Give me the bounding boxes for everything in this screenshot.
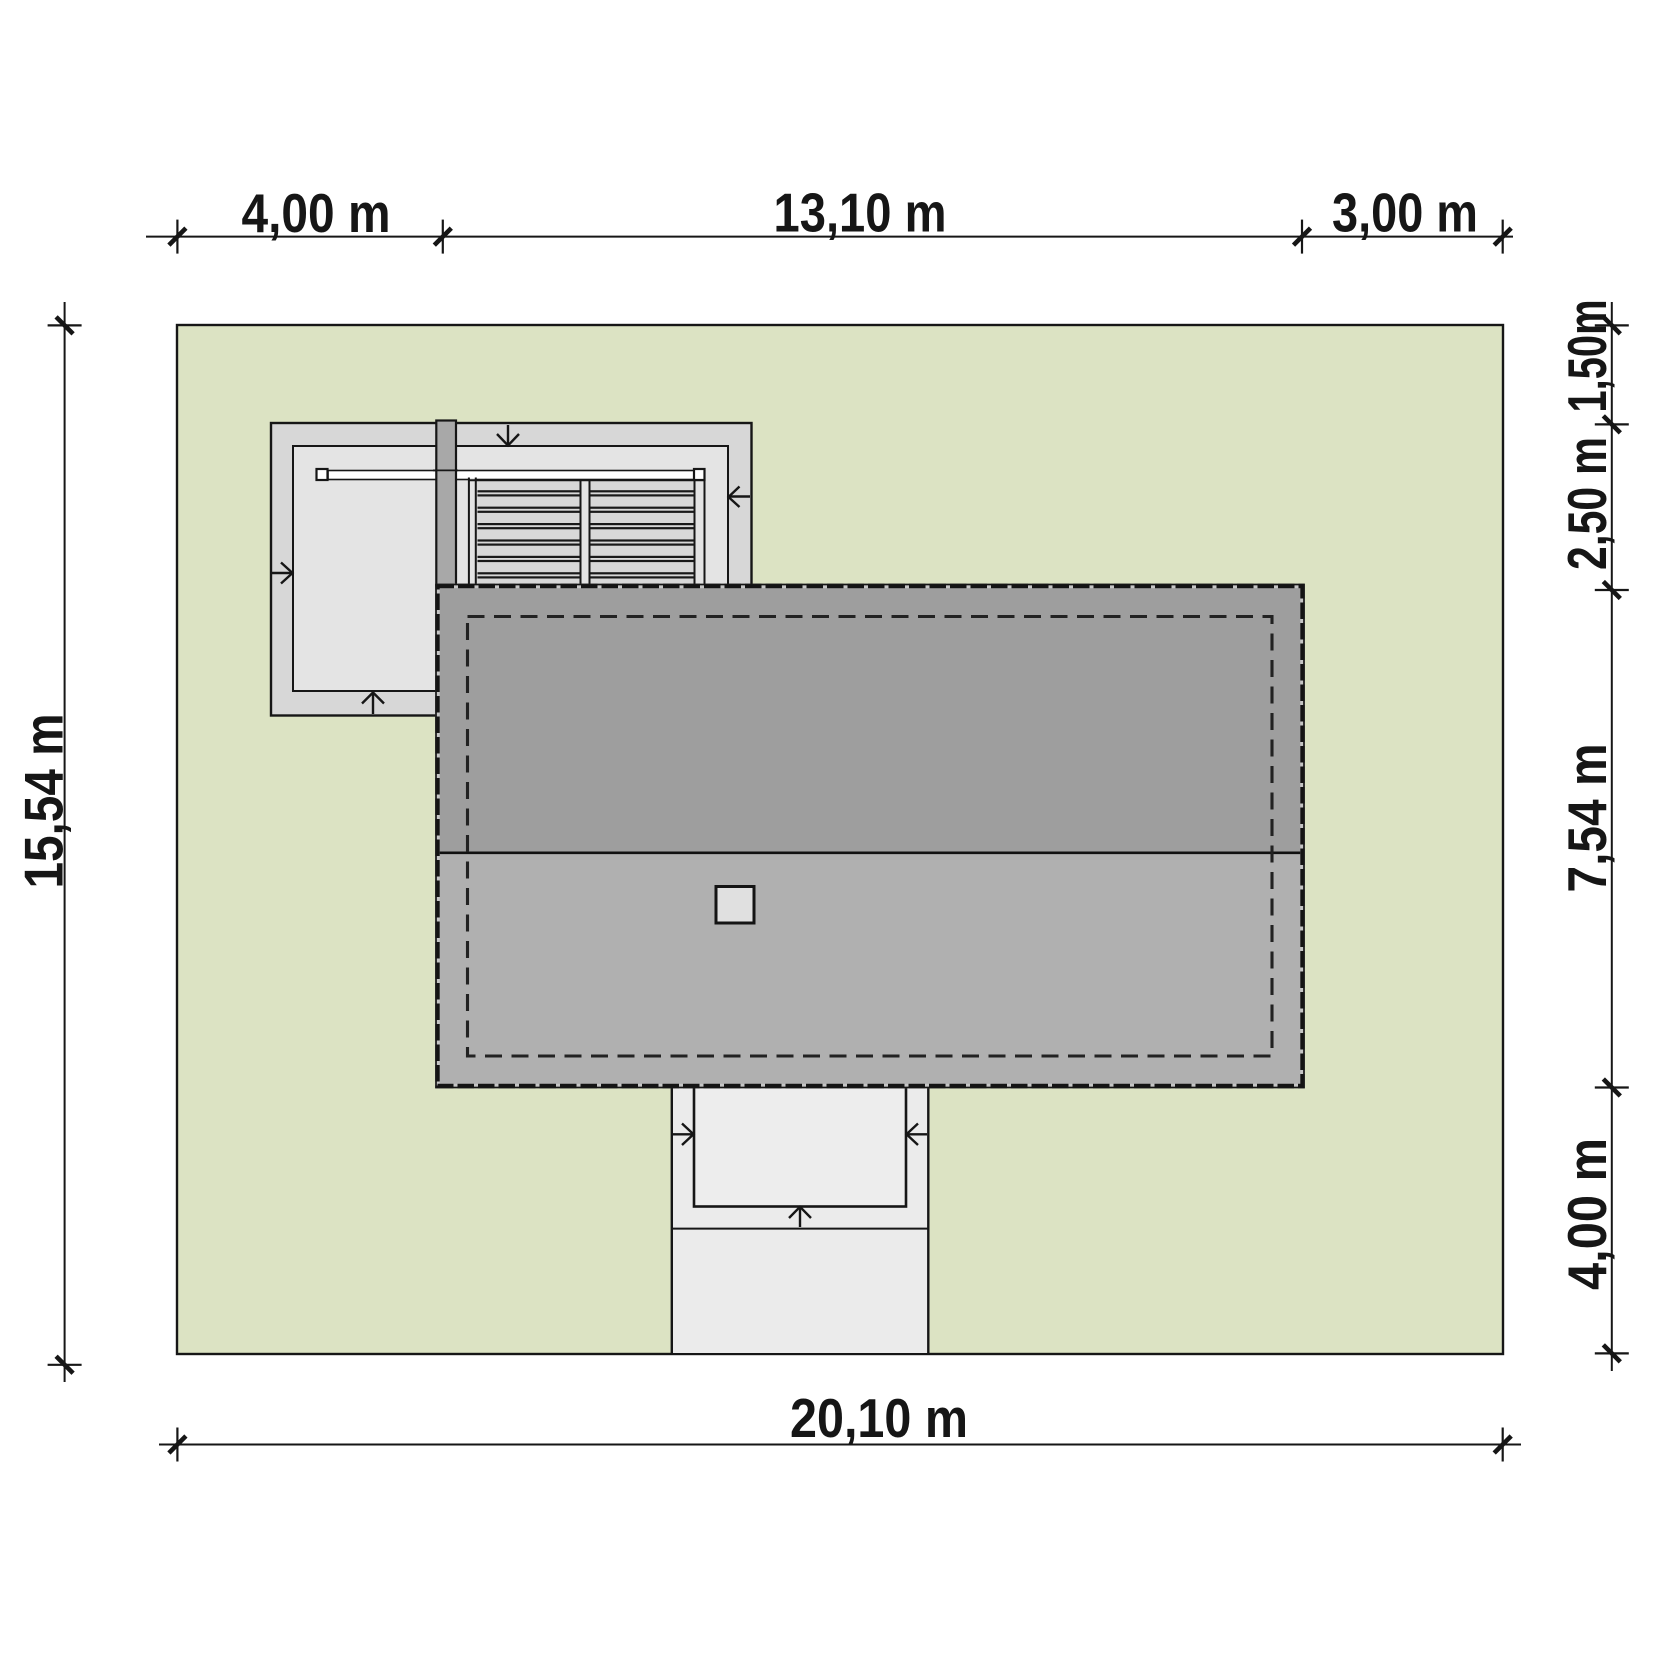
svg-text:20,10 m: 20,10 m (790, 1387, 968, 1449)
svg-text:7,54 m: 7,54 m (1556, 744, 1618, 893)
svg-text:1,50m: 1,50m (1556, 300, 1618, 413)
svg-text:13,10 m: 13,10 m (774, 182, 947, 244)
svg-text:4,00 m: 4,00 m (242, 182, 391, 244)
svg-text:15,54 m: 15,54 m (13, 714, 75, 889)
svg-text:4,00 m: 4,00 m (1556, 1138, 1618, 1290)
svg-text:2,50 m: 2,50 m (1556, 437, 1618, 570)
svg-text:3,00 m: 3,00 m (1332, 182, 1478, 244)
